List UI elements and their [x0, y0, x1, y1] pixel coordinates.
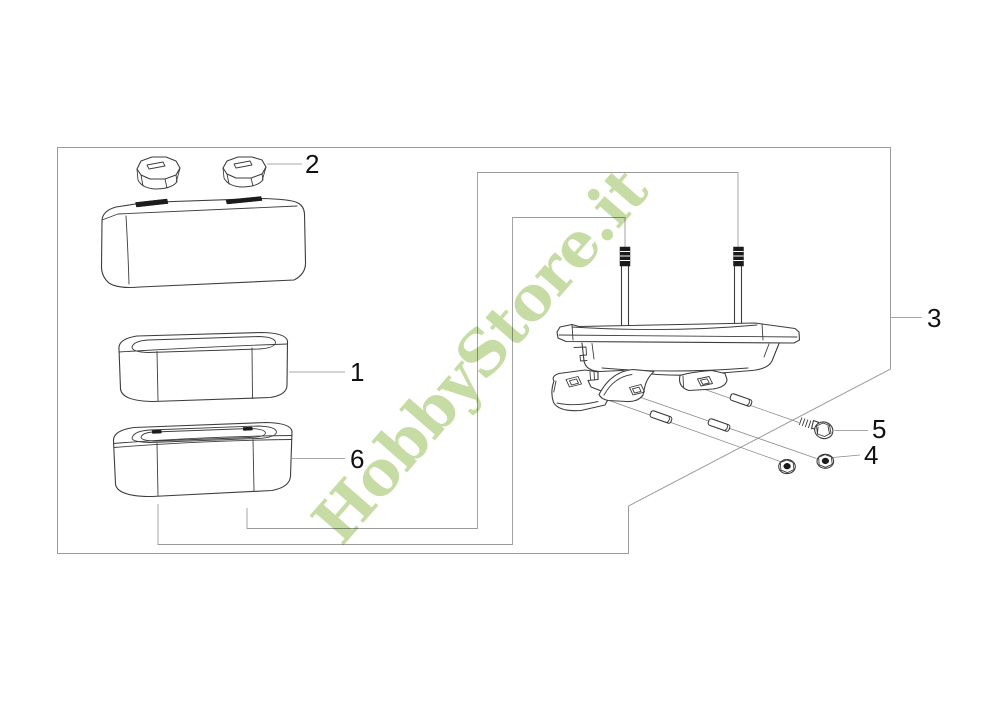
part-label-4: 4: [864, 440, 878, 470]
part-label-3: 3: [927, 303, 941, 333]
part-label-2: 2: [305, 149, 319, 179]
spacer-pins: [649, 393, 752, 432]
base-foot-left: [552, 370, 609, 411]
spacer-pin: [649, 410, 672, 424]
mounting-stud-left: [620, 247, 630, 331]
exploded-view-drawing: 2 1 6 3 5 4 HobbyStore.it: [0, 0, 1000, 708]
wing-nut-left: [137, 157, 180, 189]
wing-nut-right: [223, 157, 266, 187]
base-foot-right: [680, 371, 727, 391]
part-label-1: 1: [350, 357, 364, 387]
part-2-wing-nuts: [137, 157, 266, 189]
flange-nut-right: [817, 454, 834, 468]
spacer-pin: [707, 418, 730, 432]
mounting-stud-right: [734, 247, 744, 331]
base-flange: [557, 323, 800, 343]
spacer-pin: [729, 393, 752, 407]
flange-nut-left: [779, 460, 796, 474]
base-bracket-center: [599, 370, 654, 402]
part-1-filter-element: [119, 333, 288, 402]
part-6-filter-element: [113, 423, 292, 497]
parts-diagram-canvas: 2 1 6 3 5 4 HobbyStore.it: [0, 0, 1000, 708]
part-4-flange-nuts: [779, 454, 834, 473]
air-filter-cover: [102, 197, 306, 288]
base-bowl: [574, 343, 779, 375]
part-5-flange-bolt: [799, 418, 835, 441]
